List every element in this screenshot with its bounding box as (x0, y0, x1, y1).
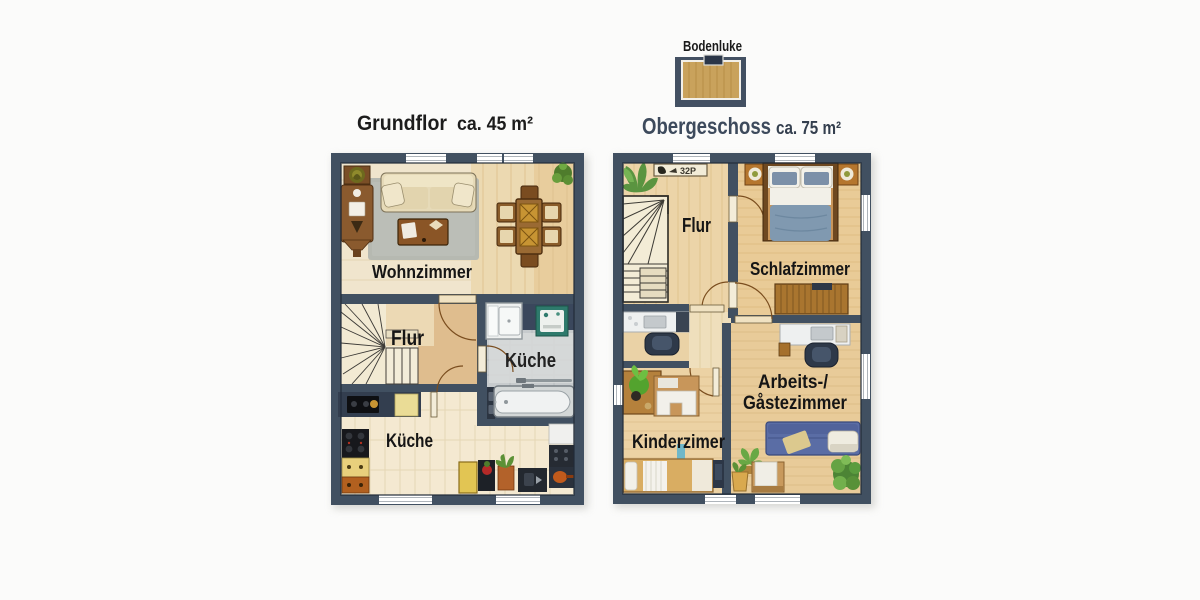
svg-text:Bodenluke: Bodenluke (683, 38, 742, 55)
svg-text:Gåstezimmer: Gåstezimmer (743, 393, 848, 414)
svg-text:ca. 75 m²: ca. 75 m² (776, 118, 841, 138)
svg-text:Flur: Flur (391, 327, 424, 350)
svg-text:Schlafzimmer: Schlafzimmer (750, 259, 850, 279)
svg-text:32P: 32P (680, 166, 696, 176)
svg-text:Wohnzimmer: Wohnzimmer (372, 262, 472, 282)
svg-text:ca. 45 m²: ca. 45 m² (457, 114, 533, 135)
svg-text:Arbeits-/: Arbeits-/ (758, 372, 829, 393)
svg-text:Flur: Flur (682, 215, 711, 237)
svg-text:Grundflor: Grundflor (357, 112, 447, 135)
svg-text:Küche: Küche (386, 431, 433, 452)
svg-text:Küche: Küche (505, 350, 556, 372)
svg-text:Kinderzimer: Kinderzimer (632, 432, 726, 453)
svg-text:Obergeschoss: Obergeschoss (642, 113, 771, 139)
